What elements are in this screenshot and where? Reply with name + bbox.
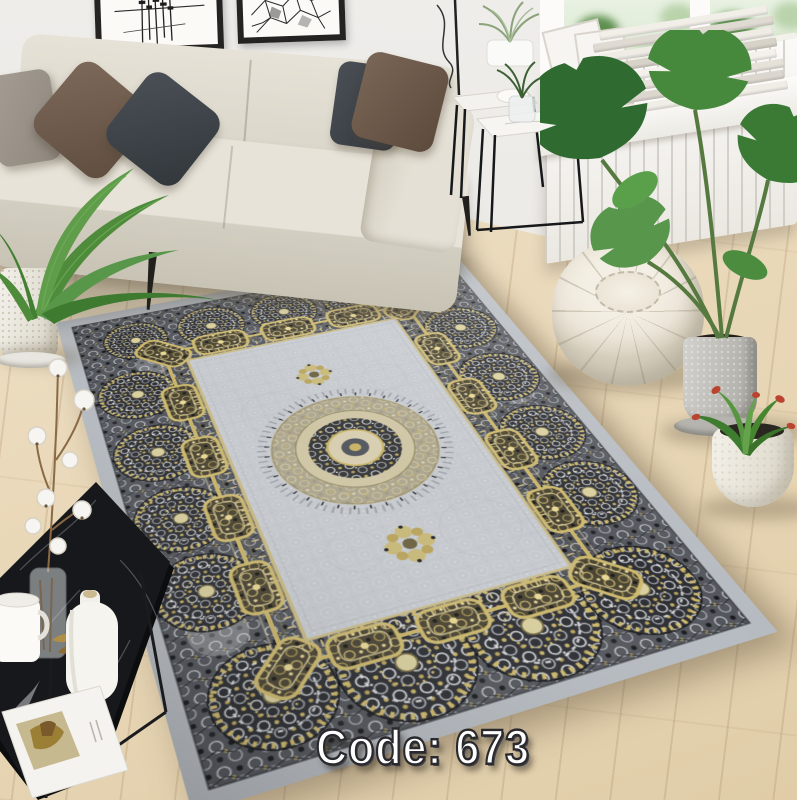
living-room-scene: Code: 673 <box>0 0 797 800</box>
sage-plant <box>479 2 539 66</box>
palm-plant <box>0 150 250 330</box>
red-green-plant <box>688 362 797 458</box>
monstera-plant <box>540 30 797 360</box>
coffee-table-group <box>0 340 190 800</box>
crackle-art <box>242 0 340 38</box>
floor-lamp <box>455 0 459 95</box>
product-code-caption: Code: 673 <box>256 720 590 776</box>
